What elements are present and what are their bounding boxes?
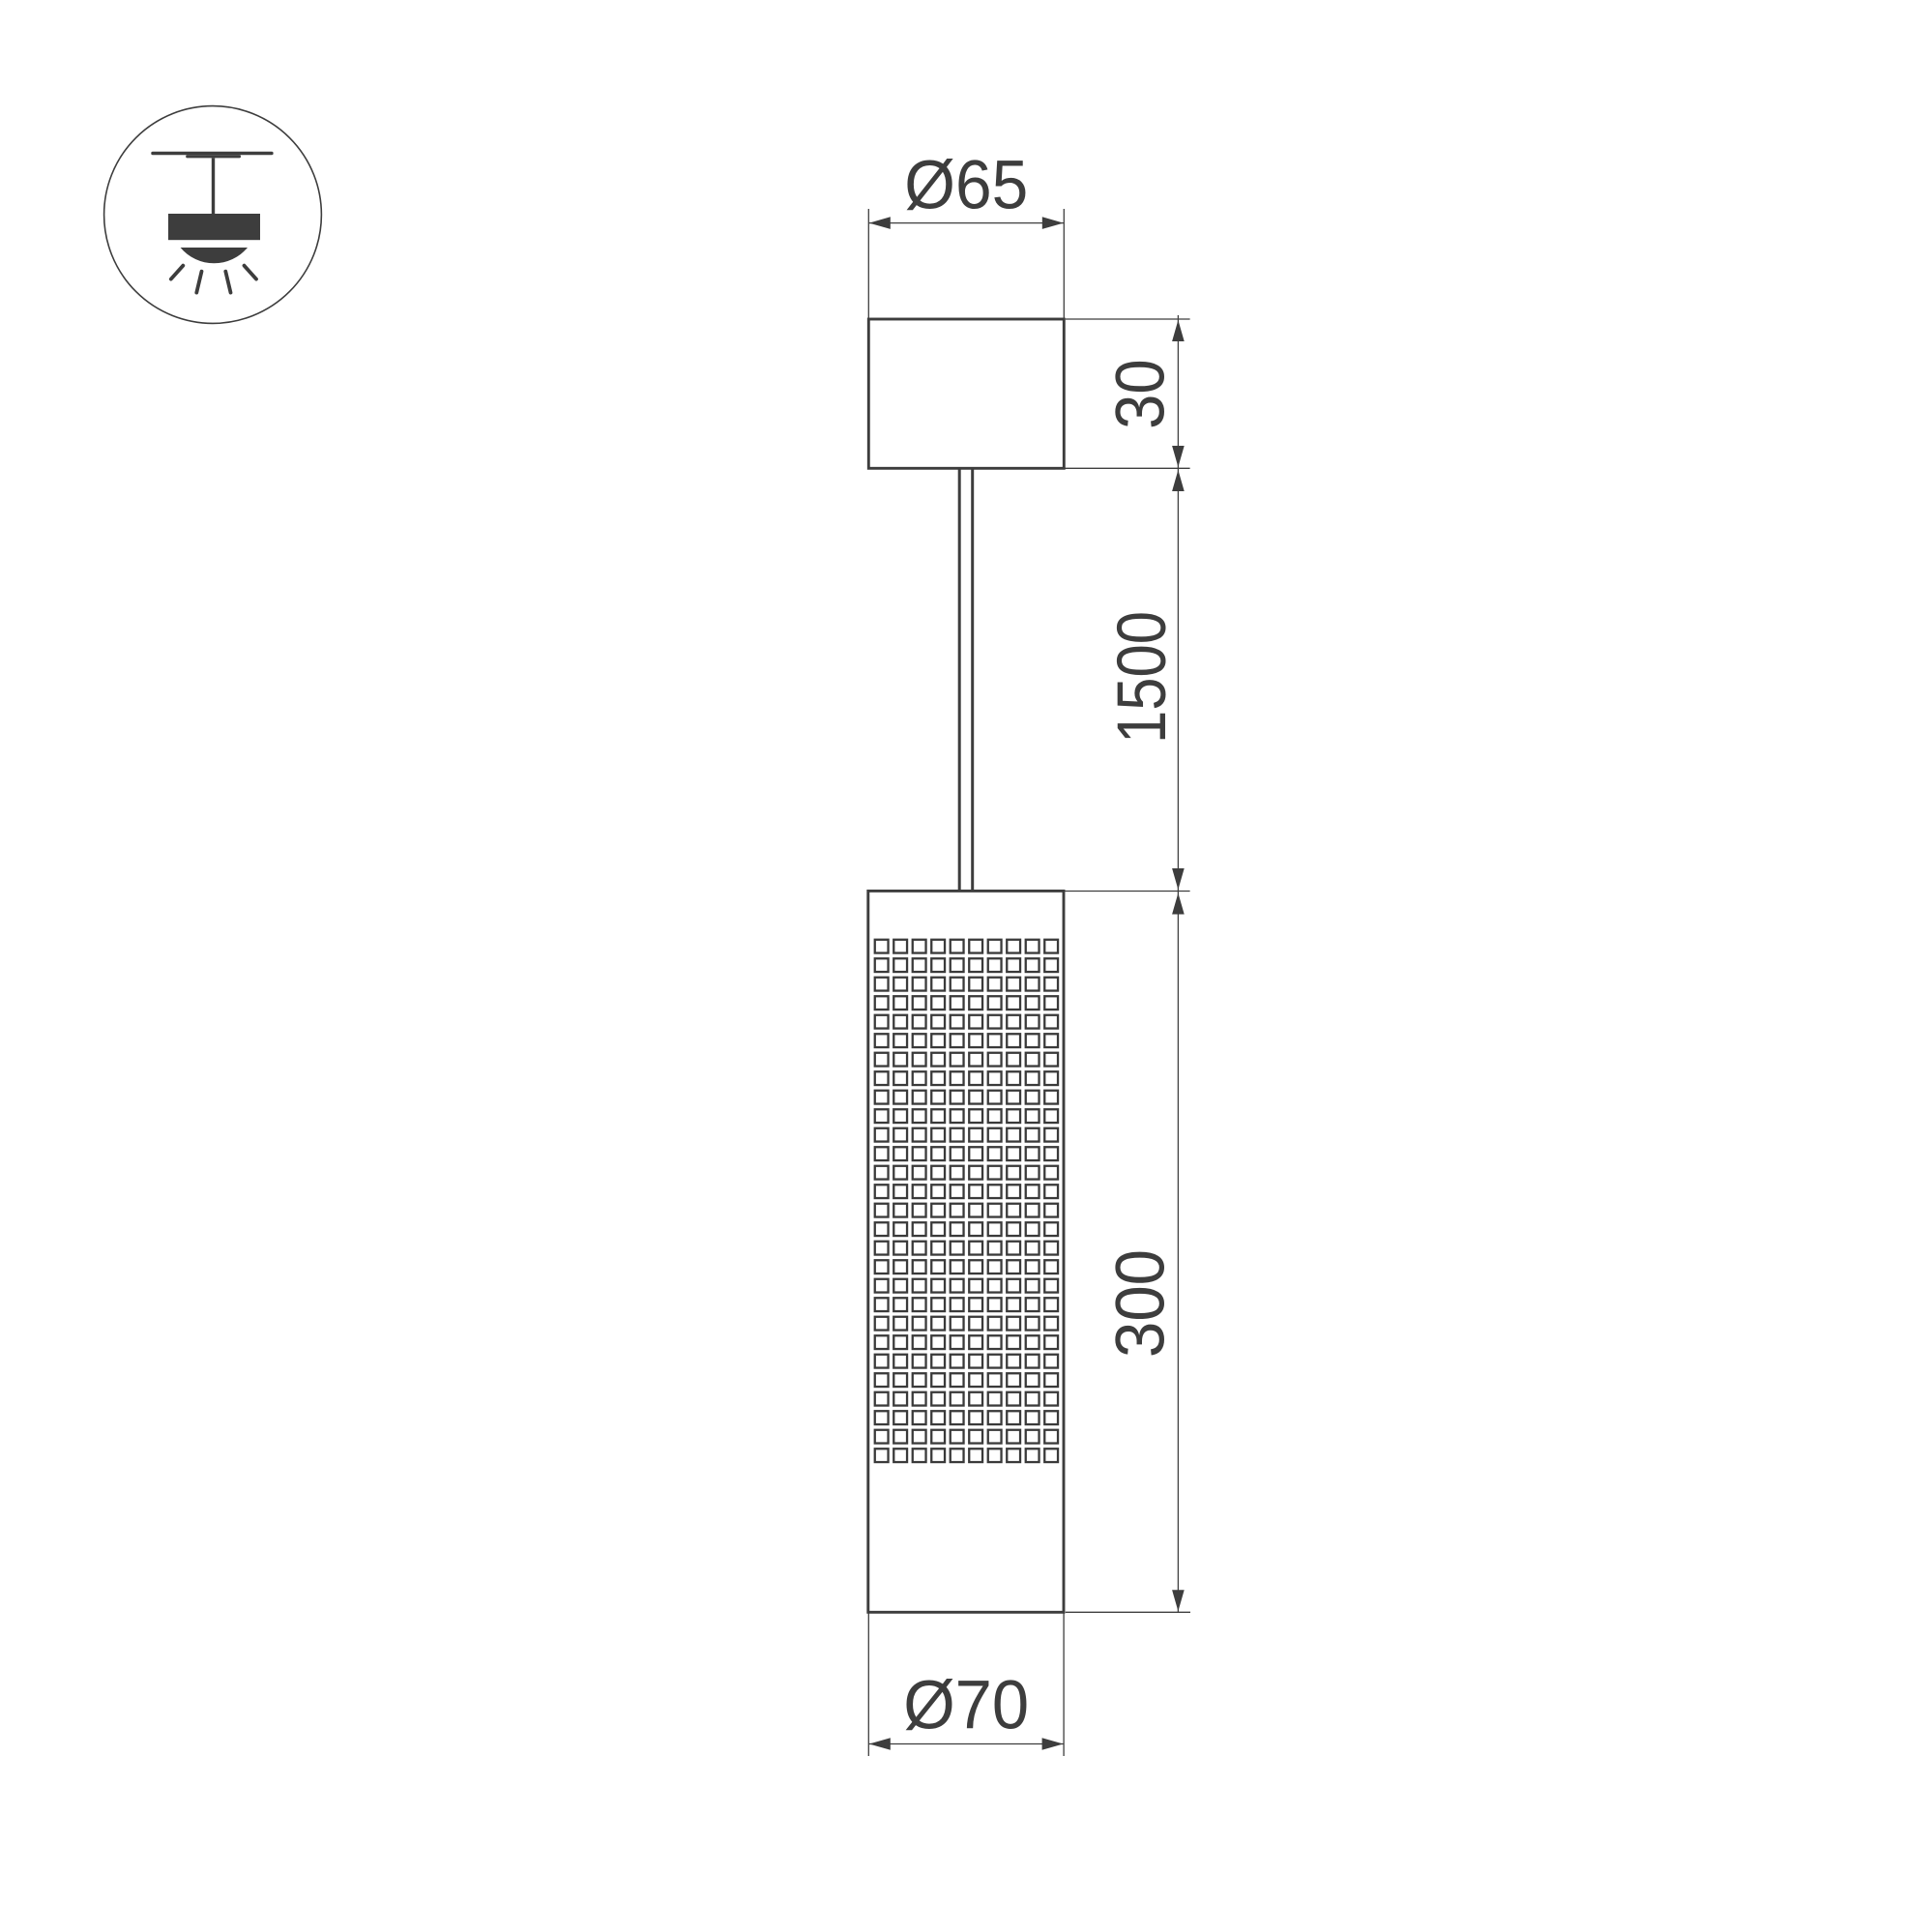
svg-text:300: 300 <box>1102 1249 1180 1358</box>
svg-text:Ø70: Ø70 <box>903 1666 1029 1743</box>
svg-text:30: 30 <box>1102 359 1180 429</box>
svg-text:1500: 1500 <box>1103 611 1181 744</box>
svg-text:Ø65: Ø65 <box>904 147 1028 224</box>
